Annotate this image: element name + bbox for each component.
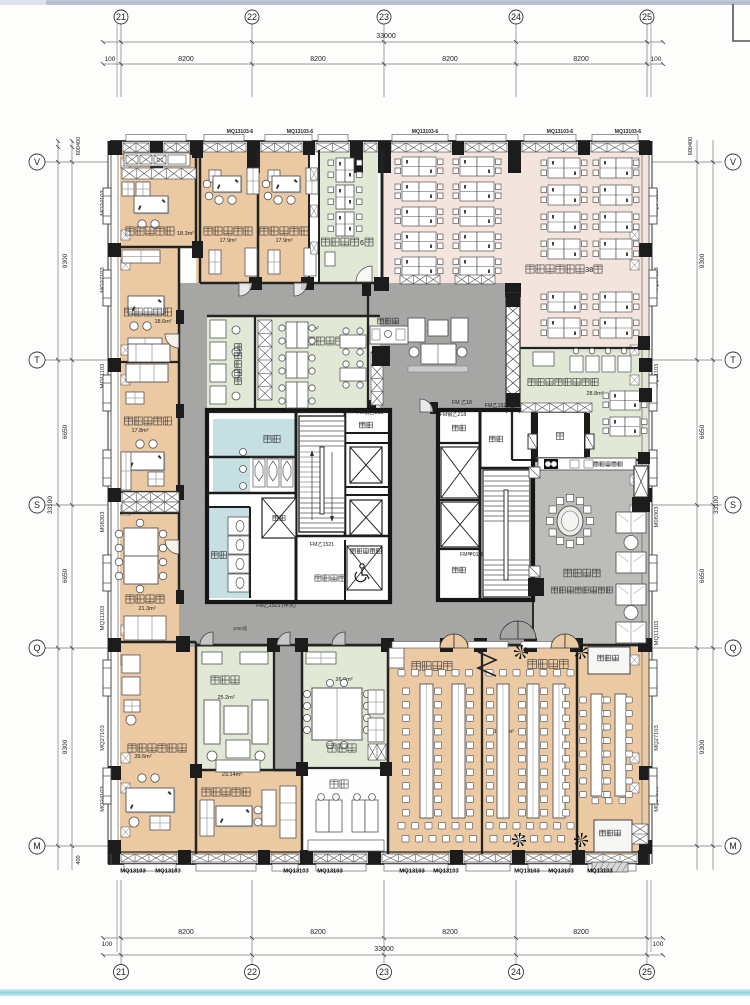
svg-text:FM钢乙218: FM钢乙218 (440, 410, 467, 418)
svg-text:23: 23 (379, 967, 389, 977)
svg-text:FM乙1521: FM乙1521 (310, 541, 334, 548)
svg-text:MQ13103: MQ13103 (399, 869, 425, 875)
svg-text:M: M (729, 841, 737, 851)
svg-text:MQ27103: MQ27103 (100, 725, 106, 750)
svg-text:25: 25 (642, 12, 652, 22)
svg-text:FM乙1521: FM乙1521 (485, 402, 509, 409)
svg-text:22: 22 (247, 12, 257, 22)
svg-text:6650: 6650 (62, 424, 69, 439)
svg-text:6650: 6650 (699, 424, 706, 439)
svg-text:400: 400 (76, 855, 82, 864)
svg-text:17.9m²: 17.9m² (219, 238, 236, 244)
svg-text:8200: 8200 (310, 929, 326, 936)
svg-text:MQ13103-6: MQ13103-6 (412, 129, 439, 135)
svg-text:MQ13103-6: MQ13103-6 (227, 129, 254, 135)
svg-text:8200: 8200 (442, 929, 458, 936)
svg-text:33100: 33100 (47, 496, 54, 514)
svg-text:8200: 8200 (573, 929, 589, 936)
svg-text:MQ11103: MQ11103 (654, 621, 660, 646)
svg-text:23.14m²: 23.14m² (222, 772, 242, 778)
svg-text:8200: 8200 (442, 56, 458, 63)
svg-text:18.6m²: 18.6m² (154, 319, 171, 325)
svg-text:23: 23 (379, 12, 389, 22)
svg-text:17.8m²: 17.8m² (131, 428, 148, 434)
svg-text:100: 100 (653, 941, 664, 948)
svg-text:1000宽: 1000宽 (233, 625, 248, 632)
svg-text:MQ13103: MQ13103 (587, 869, 613, 875)
svg-text:39.6m²: 39.6m² (134, 754, 151, 760)
svg-text:9300: 9300 (62, 253, 69, 268)
svg-text:17.9m²: 17.9m² (275, 238, 292, 244)
svg-text:MQ13103: MQ13103 (433, 869, 459, 875)
svg-text:100: 100 (102, 941, 113, 948)
svg-text:T: T (730, 355, 736, 365)
svg-text:6: 6 (360, 240, 364, 247)
svg-text:S: S (34, 500, 40, 510)
svg-text:MQ13103-6: MQ13103-6 (615, 129, 642, 135)
svg-text:8200: 8200 (310, 56, 326, 63)
svg-text:MQ11103: MQ11103 (100, 606, 106, 631)
svg-text:100: 100 (105, 56, 116, 63)
svg-text:9300: 9300 (699, 739, 706, 754)
svg-text:6650: 6650 (699, 568, 706, 583)
svg-text:FM 乙18: FM 乙18 (452, 399, 472, 406)
svg-text:24: 24 (511, 12, 521, 22)
svg-text:Q: Q (33, 643, 40, 653)
svg-text:600400: 600400 (76, 137, 82, 155)
svg-text:8200: 8200 (178, 56, 194, 63)
svg-text:FM甲0118: FM甲0118 (460, 551, 484, 558)
svg-text:MQ13103: MQ13103 (120, 869, 146, 875)
svg-text:MQ13103: MQ13103 (283, 869, 309, 875)
svg-text:33100: 33100 (713, 496, 720, 514)
svg-text:V: V (730, 157, 736, 167)
svg-text:MQ13103: MQ13103 (317, 869, 343, 875)
svg-text:M08303: M08303 (654, 507, 660, 528)
svg-text:600400: 600400 (688, 137, 694, 155)
svg-text:9300: 9300 (62, 739, 69, 754)
svg-text:24: 24 (511, 967, 521, 977)
svg-text:MQ13103-6: MQ13103-6 (547, 129, 574, 135)
svg-text:M: M (33, 841, 41, 851)
svg-text:25: 25 (642, 967, 652, 977)
svg-text:T: T (34, 355, 40, 365)
svg-text:M08303: M08303 (100, 512, 106, 533)
svg-text:MQ27103: MQ27103 (654, 725, 660, 750)
svg-text:S: S (730, 500, 736, 510)
svg-text:9300: 9300 (699, 253, 706, 268)
svg-text:8200: 8200 (573, 56, 589, 63)
svg-text:22: 22 (247, 967, 257, 977)
svg-text:8200: 8200 (178, 929, 194, 936)
svg-text:28.8m²: 28.8m² (586, 391, 603, 397)
svg-text:100: 100 (651, 56, 662, 63)
svg-text:MQ13103: MQ13103 (548, 869, 574, 875)
svg-text:V: V (34, 157, 40, 167)
svg-text:21: 21 (116, 12, 126, 22)
svg-text:33000: 33000 (374, 946, 394, 953)
svg-text:MQ13103: MQ13103 (155, 869, 181, 875)
svg-text:MQ13103: MQ13103 (514, 869, 540, 875)
svg-text:18.3m²: 18.3m² (177, 231, 194, 237)
svg-text:21.3m²: 21.3m² (138, 606, 155, 612)
svg-text:21: 21 (116, 967, 126, 977)
svg-text:C1: C1 (156, 158, 163, 164)
svg-text:38: 38 (585, 265, 593, 274)
svg-text:6650: 6650 (62, 568, 69, 583)
svg-text:33000: 33000 (376, 33, 396, 40)
svg-text:FM钢乙218: FM钢乙218 (357, 408, 384, 416)
svg-text:Q: Q (729, 643, 736, 653)
svg-text:MQ13103-6: MQ13103-6 (287, 129, 314, 135)
svg-text:FM乙1521 (甲灭): FM乙1521 (甲灭) (256, 602, 296, 609)
